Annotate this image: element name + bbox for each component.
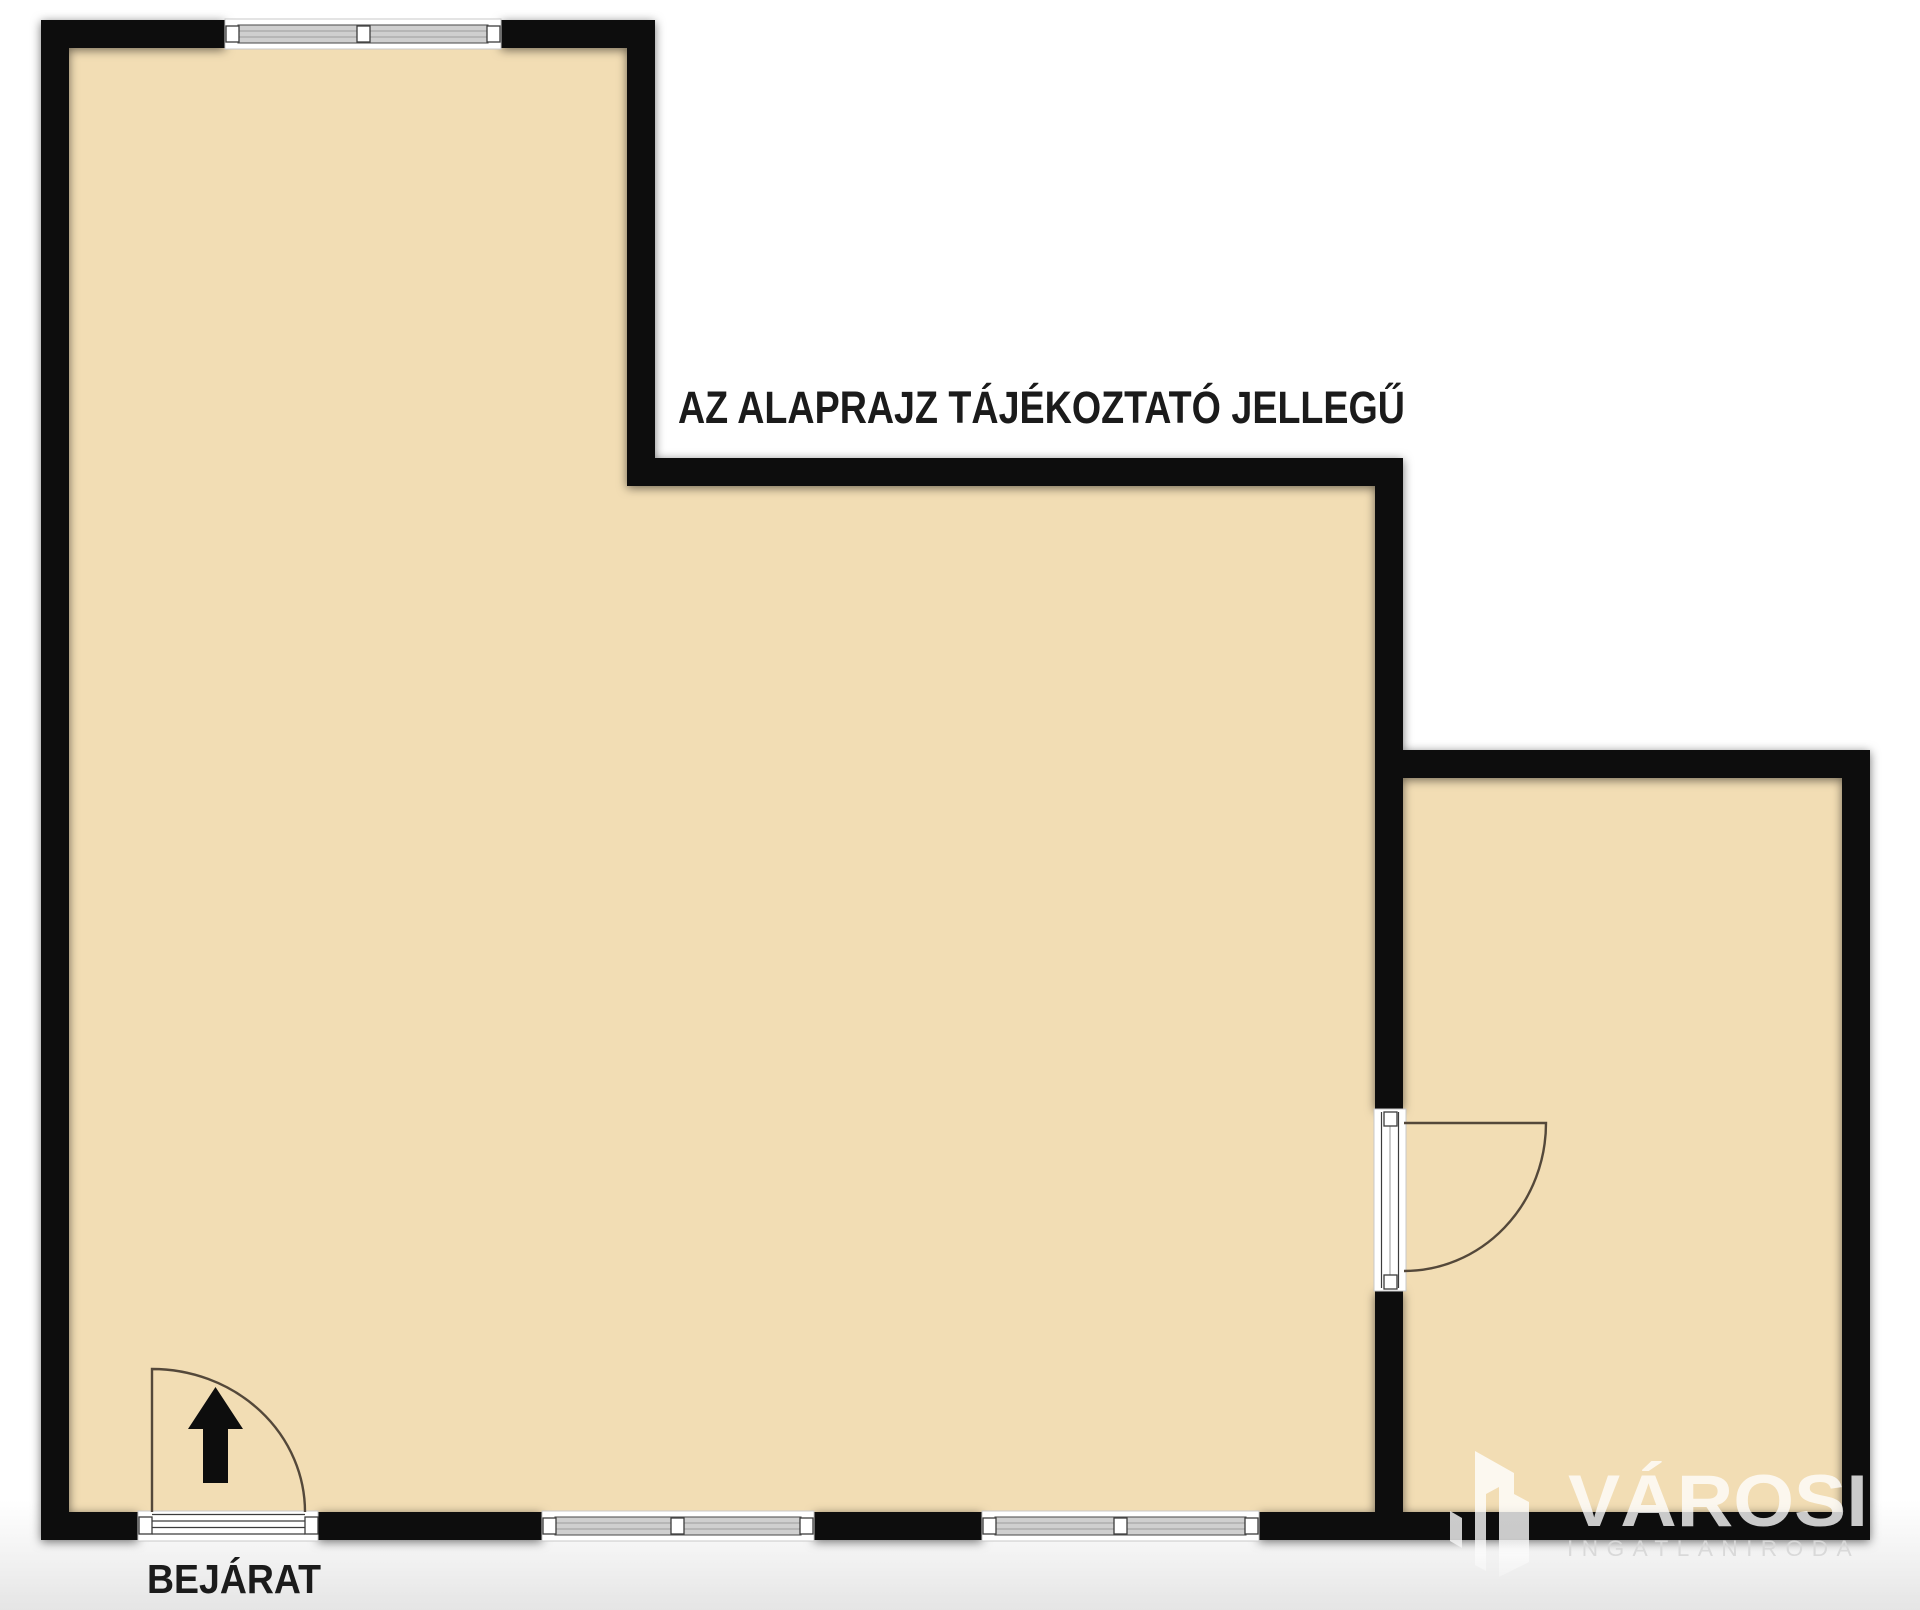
svg-text:BEJÁRAT: BEJÁRAT [147,1556,321,1602]
svg-text:INGATLANIRODA: INGATLANIRODA [1567,1536,1860,1561]
svg-text:VÁROSI: VÁROSI [1568,1461,1868,1542]
svg-text:AZ ALAPRAJZ TÁJÉKOZTATÓ JELLEG: AZ ALAPRAJZ TÁJÉKOZTATÓ JELLEGŰ [678,382,1405,433]
